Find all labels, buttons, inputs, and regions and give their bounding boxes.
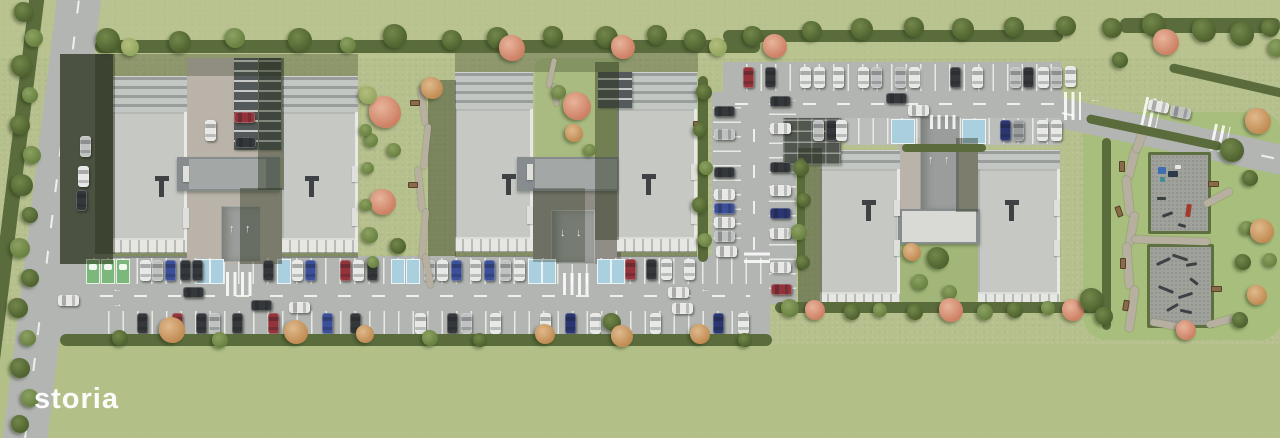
tree	[11, 415, 29, 433]
road-arrow: ↑	[245, 224, 251, 235]
tree	[25, 29, 43, 47]
car	[490, 313, 501, 334]
car	[770, 123, 791, 134]
tree	[284, 320, 308, 344]
tree	[169, 31, 191, 53]
building-north-wing	[113, 76, 187, 114]
tree	[611, 325, 633, 347]
tree	[698, 233, 712, 247]
tree	[1112, 52, 1128, 68]
reserved-parking-pad	[542, 259, 556, 284]
tree	[1102, 18, 1122, 38]
rooftop-core	[352, 166, 358, 182]
cast-shadow	[113, 54, 358, 76]
car	[765, 67, 776, 88]
rooftop-core	[183, 208, 189, 228]
grass-patch	[0, 345, 1280, 438]
rooftop-core	[1054, 200, 1060, 216]
tree	[1263, 253, 1277, 267]
footpath	[415, 167, 426, 212]
bench	[1211, 286, 1222, 292]
tree	[20, 330, 36, 346]
eco-car-icon	[104, 264, 112, 270]
tree	[647, 25, 667, 45]
tree	[362, 162, 374, 174]
tree	[23, 146, 41, 164]
car	[183, 287, 204, 298]
tree	[977, 304, 993, 320]
car	[1065, 66, 1076, 87]
road-arrow: ↑	[928, 155, 934, 166]
roof-hatch-stem	[309, 181, 314, 197]
reserved-parking-pad	[611, 259, 625, 284]
reserved-parking-pad	[528, 259, 542, 284]
car	[714, 129, 735, 140]
car	[836, 120, 847, 141]
play-equipment	[1157, 197, 1166, 200]
tree	[791, 224, 807, 240]
car	[625, 259, 636, 280]
eco-car-icon	[119, 264, 127, 270]
tree	[903, 243, 921, 261]
car	[1010, 67, 1021, 88]
crosswalk	[1064, 92, 1081, 120]
reserved-parking-pad	[597, 259, 611, 284]
road-centerline	[753, 112, 755, 250]
tree	[844, 304, 860, 320]
building-roof	[113, 112, 187, 240]
car	[1051, 120, 1062, 141]
cast-shadow	[428, 80, 456, 256]
tree	[611, 35, 635, 59]
car	[858, 67, 869, 88]
tree	[159, 317, 185, 343]
play-equipment	[1160, 177, 1165, 182]
car	[972, 67, 983, 88]
tree	[738, 333, 752, 347]
building-north-wing	[978, 150, 1060, 171]
tree	[952, 18, 974, 40]
car	[209, 313, 220, 334]
tree	[692, 197, 708, 213]
road-arrow: ↑	[229, 224, 235, 235]
tree	[797, 193, 811, 207]
tree	[693, 123, 707, 137]
play-equipment	[1175, 165, 1181, 169]
rooftop-core	[352, 208, 358, 226]
tree	[340, 37, 356, 53]
tree	[1176, 320, 1196, 340]
tree	[543, 26, 563, 46]
car	[205, 120, 216, 141]
building-roof	[617, 109, 697, 239]
tree	[1192, 18, 1216, 42]
tree	[535, 324, 555, 344]
car	[661, 259, 672, 280]
car	[833, 67, 844, 88]
car	[770, 185, 791, 196]
car	[514, 260, 525, 281]
play-equipment	[1158, 167, 1166, 174]
car	[714, 231, 735, 242]
bench	[1119, 161, 1125, 172]
tree	[360, 199, 372, 211]
tree	[793, 160, 809, 176]
tree	[288, 28, 312, 52]
rooftop-core	[1054, 240, 1060, 256]
tree	[22, 207, 38, 223]
tree	[796, 255, 810, 269]
tree	[212, 332, 228, 348]
car	[800, 67, 811, 88]
tree	[14, 2, 34, 22]
car	[58, 295, 79, 306]
tree	[225, 28, 245, 48]
tree	[912, 274, 928, 290]
tree	[422, 330, 438, 346]
building-roof	[282, 112, 358, 240]
tree	[1041, 301, 1055, 315]
car	[770, 208, 791, 219]
tree	[1247, 285, 1267, 305]
tree	[699, 161, 713, 175]
car	[771, 284, 792, 295]
tree	[112, 330, 128, 346]
cast-shadow	[455, 251, 533, 257]
tree	[1232, 312, 1248, 328]
tree	[1268, 39, 1280, 57]
tree	[805, 300, 825, 320]
car	[165, 260, 176, 281]
roof-hatch-stem	[1009, 205, 1014, 221]
tree	[8, 298, 28, 318]
tree	[356, 325, 374, 343]
tree	[360, 124, 372, 136]
rooftop-core	[527, 164, 533, 180]
hedge-row	[1168, 63, 1280, 98]
roof-hatch	[1005, 200, 1019, 222]
tree	[851, 18, 873, 40]
car	[950, 67, 961, 88]
car	[714, 106, 735, 117]
tree	[709, 38, 727, 56]
tree	[11, 55, 33, 77]
car	[908, 105, 929, 116]
roof-hatch	[155, 176, 169, 198]
cast-shadow	[617, 251, 697, 257]
tree	[1242, 170, 1258, 186]
hedge-row	[902, 144, 986, 152]
tree	[121, 38, 139, 56]
car	[565, 313, 576, 334]
tree	[763, 34, 787, 58]
tree	[387, 143, 401, 157]
building-north-wing	[282, 76, 358, 114]
tree	[743, 26, 763, 46]
car	[770, 96, 791, 107]
roof-hatch	[862, 200, 876, 222]
tree	[96, 28, 120, 52]
tree	[370, 189, 396, 215]
tree	[1095, 307, 1113, 325]
tree	[873, 303, 887, 317]
car	[814, 67, 825, 88]
car	[650, 313, 661, 334]
tree	[421, 77, 443, 99]
driveway-group3	[920, 116, 960, 212]
crosswalk	[226, 272, 254, 296]
car	[235, 137, 256, 148]
roof-hatch	[642, 174, 656, 196]
tree	[11, 174, 33, 196]
tree	[359, 86, 377, 104]
car	[1051, 67, 1062, 88]
car	[714, 217, 735, 228]
tree	[696, 84, 712, 100]
car	[646, 259, 657, 280]
road-arrow: ↓	[576, 228, 582, 239]
reserved-parking-pad	[406, 259, 420, 284]
car	[871, 67, 882, 88]
building-roof	[978, 169, 1060, 294]
building-roof	[820, 169, 900, 294]
tree	[390, 238, 406, 254]
rooftop-core	[894, 240, 900, 256]
tree	[904, 17, 924, 37]
road-arrow: ↓	[560, 228, 566, 239]
car	[684, 259, 695, 280]
car	[716, 246, 737, 257]
tree	[563, 92, 591, 120]
bench	[1208, 181, 1219, 187]
road-arrow: ←	[700, 284, 711, 295]
eco-parking-spot	[116, 259, 130, 284]
roof-hatch-stem	[866, 205, 871, 221]
tree	[10, 358, 30, 378]
tree	[1007, 302, 1023, 318]
tree	[22, 87, 38, 103]
roof-hatch-stem	[159, 181, 164, 197]
tree	[684, 29, 706, 51]
tree	[499, 35, 525, 61]
crosswalk	[563, 273, 591, 295]
reserved-parking-pad	[891, 119, 915, 144]
road-arrow: ←	[1090, 94, 1101, 105]
car	[451, 260, 462, 281]
tree	[584, 144, 596, 156]
car	[268, 313, 279, 334]
reserved-parking-pad	[391, 259, 405, 284]
car	[714, 167, 735, 178]
cast-shadow	[258, 58, 284, 190]
car	[500, 260, 511, 281]
tree	[552, 85, 566, 99]
cast-shadow	[113, 252, 187, 258]
tree	[1261, 19, 1279, 37]
aerial-site-plan-render: ←→←←←↑↑↓↓↑↑ storia	[0, 0, 1280, 438]
cast-shadow	[595, 62, 619, 240]
tree	[10, 238, 30, 258]
car	[263, 260, 274, 281]
tree	[939, 298, 963, 322]
storia-watermark: storia	[34, 383, 119, 416]
tree	[1056, 16, 1076, 36]
tree	[362, 227, 378, 243]
car	[461, 313, 472, 334]
car	[909, 67, 920, 88]
tree	[367, 256, 379, 268]
car	[340, 260, 351, 281]
car	[196, 313, 207, 334]
cast-shadow	[533, 188, 585, 262]
tree	[1235, 254, 1251, 270]
tree	[442, 30, 462, 50]
building-north-wing	[455, 72, 533, 111]
bridge-center	[902, 211, 976, 242]
car	[743, 67, 754, 88]
tree	[10, 115, 30, 135]
car	[180, 260, 191, 281]
car	[895, 67, 906, 88]
bench	[408, 182, 418, 188]
tree	[690, 324, 710, 344]
tree	[927, 247, 949, 269]
tree	[907, 304, 923, 320]
car	[78, 166, 89, 187]
eco-car-icon	[89, 264, 97, 270]
car	[289, 302, 310, 313]
car	[80, 136, 91, 157]
tree	[1153, 29, 1179, 55]
roof-hatch-stem	[506, 179, 511, 195]
car	[713, 313, 724, 334]
car	[1000, 120, 1011, 141]
tree	[1250, 219, 1274, 243]
car	[714, 203, 735, 214]
car	[140, 260, 151, 281]
cast-shadow	[455, 50, 698, 72]
car	[251, 300, 272, 311]
roof-hatch-stem	[646, 179, 651, 195]
car	[770, 162, 791, 173]
cast-shadow	[282, 252, 358, 258]
tree	[1004, 17, 1024, 37]
bench	[410, 100, 420, 106]
car	[152, 260, 163, 281]
car	[1037, 120, 1048, 141]
car	[813, 120, 824, 141]
tree	[943, 285, 957, 299]
car	[470, 260, 481, 281]
car	[76, 190, 87, 211]
bench	[1120, 258, 1126, 269]
tree	[473, 333, 487, 347]
car	[292, 260, 303, 281]
car	[668, 287, 689, 298]
play-equipment	[1168, 171, 1178, 177]
roof-hatch	[502, 174, 516, 196]
crosswalk	[744, 250, 770, 263]
car	[1038, 67, 1049, 88]
link-bridge	[898, 209, 980, 244]
road-arrow: →	[112, 299, 123, 310]
tree	[781, 299, 799, 317]
crosswalk	[930, 115, 958, 129]
car	[1023, 67, 1034, 88]
car	[714, 189, 735, 200]
road-arrow: ↑	[944, 155, 950, 166]
car	[484, 260, 495, 281]
tree	[1245, 108, 1271, 134]
tree	[565, 124, 583, 142]
car	[137, 313, 148, 334]
rooftop-core	[691, 164, 697, 180]
car	[234, 112, 255, 123]
car	[770, 262, 791, 273]
car	[590, 313, 601, 334]
car	[738, 313, 749, 334]
bridge-center	[189, 159, 266, 189]
car	[322, 313, 333, 334]
car	[770, 228, 791, 239]
scene-layers: ←→←←←↑↑↓↓↑↑	[0, 0, 1280, 438]
tree	[802, 21, 822, 41]
reserved-parking-pad	[210, 259, 224, 284]
road-arrow: ←	[112, 284, 123, 295]
car	[353, 260, 364, 281]
tree	[383, 24, 407, 48]
rooftop-core	[183, 166, 189, 182]
car	[437, 260, 448, 281]
roof-hatch	[305, 176, 319, 198]
cast-shadow	[95, 54, 115, 254]
car	[672, 303, 693, 314]
car	[232, 313, 243, 334]
rooftop-core	[894, 200, 900, 216]
tree	[1220, 138, 1244, 162]
car	[447, 313, 458, 334]
car	[305, 260, 316, 281]
tree	[21, 269, 39, 287]
car	[1013, 120, 1024, 141]
car	[192, 260, 203, 281]
car	[886, 93, 907, 104]
tree	[1230, 22, 1254, 46]
